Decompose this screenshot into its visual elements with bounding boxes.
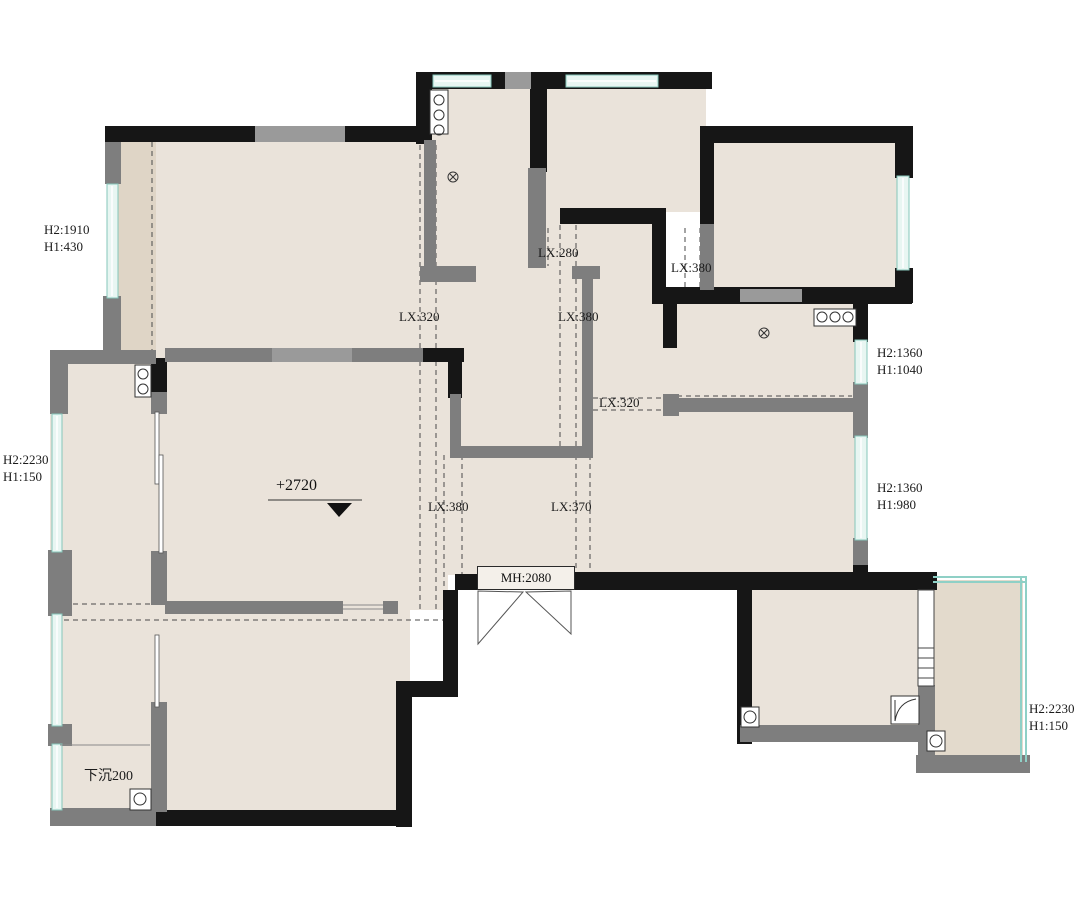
stove-icon: [430, 90, 448, 135]
beam-label: LX:280: [538, 245, 578, 262]
entry-door-width-label: MH:2080: [477, 566, 575, 590]
beam-label: LX:380: [671, 260, 711, 277]
floor-plan-canvas: H2:1910H1:430 H2:2230H1:150 H2:1360H1:10…: [0, 0, 1080, 910]
window-height-label-bottom-right: H2:2230H1:150: [1029, 701, 1075, 734]
floor-drain-icon: [741, 707, 759, 727]
beam-label: LX:380: [558, 309, 598, 326]
basin-row-icon: [814, 309, 856, 326]
floor-drain-icon: [130, 789, 151, 810]
sunken-floor-label: 下沉200: [84, 768, 133, 786]
swing-door-symbol: [891, 696, 919, 724]
floor-drain-icon: [927, 731, 945, 751]
balcony-floor: [933, 580, 1023, 758]
window-height-label-right-upper: H2:1360H1:1040: [877, 345, 923, 378]
louver-window: [918, 648, 934, 686]
window-height-label-left-middle: H2:2230H1:150: [3, 452, 49, 485]
beam-label: LX:320: [599, 395, 639, 412]
beam-label: LX:380: [428, 499, 468, 516]
window-height-label-right-lower: H2:1360H1:980: [877, 480, 923, 513]
beam-label: LX:320: [399, 309, 439, 326]
beam-label: LX:370: [551, 499, 591, 516]
floor-plan-drawing: [0, 0, 1080, 910]
elevation-label: +2720: [276, 478, 317, 494]
entry-door-symbol: [478, 591, 571, 644]
window-height-label-left-top: H2:1910H1:430: [44, 222, 90, 255]
bedroom-side-opening: [918, 590, 934, 686]
washer-icon: [135, 365, 151, 397]
